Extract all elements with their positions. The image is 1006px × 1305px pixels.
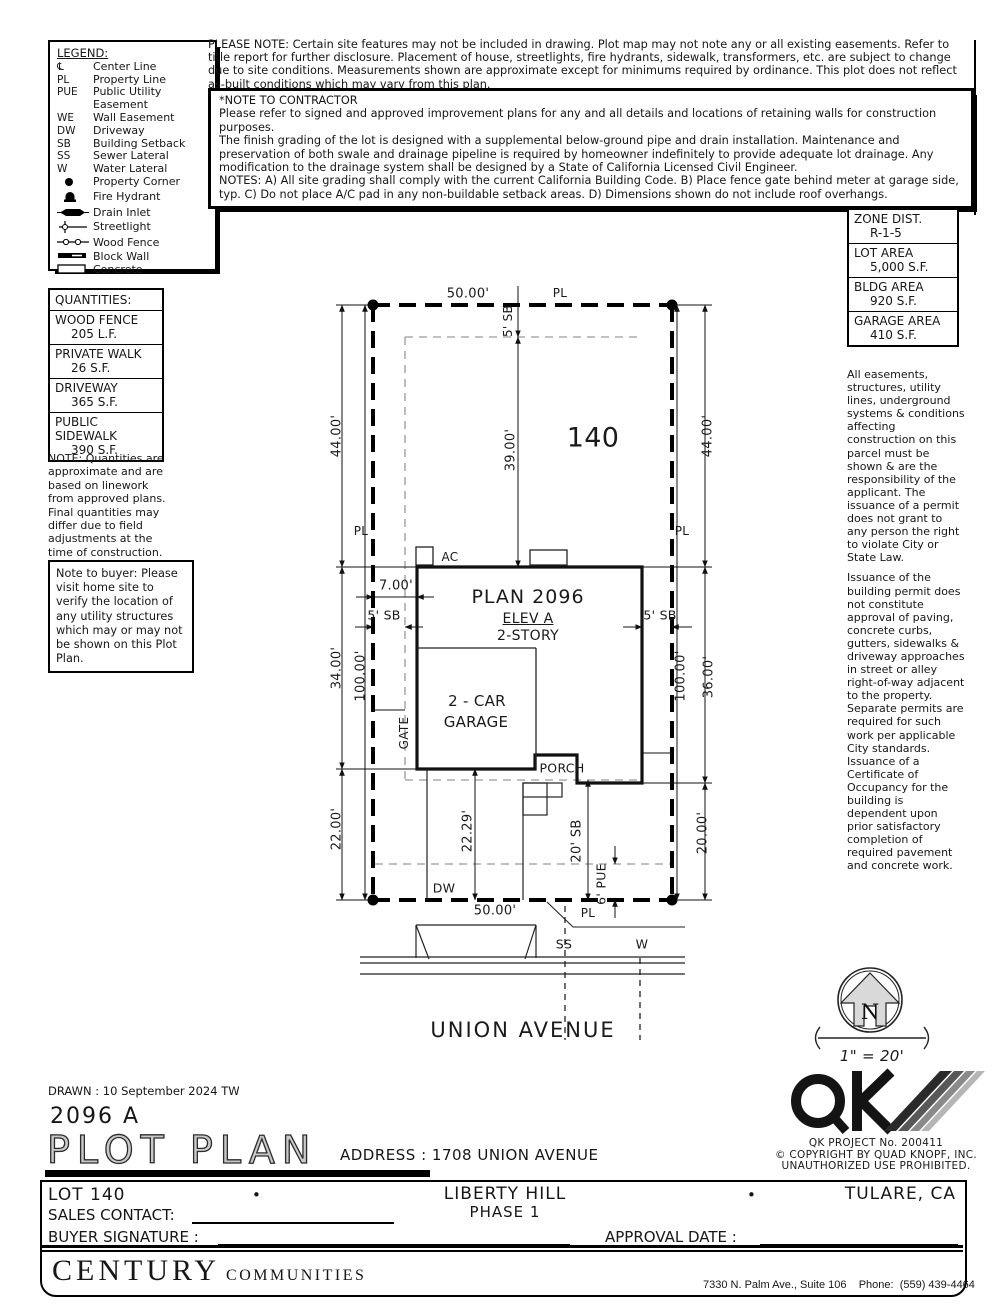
city-disclaimer-text: All easements, structures, utility lines… [847, 368, 965, 873]
separator-line [40, 1250, 963, 1252]
lot-label: LOT 140 [48, 1185, 125, 1205]
contractor-note-p2: The finish grading of the lot is designe… [219, 134, 963, 174]
sales-contact-line [192, 1205, 394, 1224]
plan-name: PLAN 2096 [471, 586, 584, 608]
ac-label: AC [442, 550, 459, 564]
legend-item: Wood Fence [57, 237, 209, 251]
porch-label: PORCH [539, 761, 584, 776]
setback-label-left: 5' SB [367, 608, 400, 623]
setback-label-right: 5' SB [643, 608, 676, 623]
legend-item: ℄Center Line [57, 61, 209, 74]
buyer-signature-line [218, 1227, 570, 1246]
site-address: ADDRESS : 1708 UNION AVENUE [340, 1146, 598, 1164]
scale-bar [816, 1027, 929, 1049]
note-to-buyer-box: Note to buyer: Please visit home site to… [48, 560, 194, 673]
legend-item: PUEPublic Utility Easement [57, 86, 209, 112]
buyer-signature-label: BUYER SIGNATURE : [48, 1228, 199, 1246]
plan-number: 2096 A [50, 1104, 140, 1129]
quantities-title: QUANTITIES: [50, 290, 162, 310]
wall-easement-symbol: WE [57, 112, 93, 125]
note-to-contractor-box: *NOTE TO CONTRACTOR Please refer to sign… [208, 88, 974, 209]
garage-label-1: 2 - CAR [448, 692, 506, 710]
property-line-symbol: PL [57, 74, 93, 87]
north-compass: N [838, 968, 902, 1032]
concrete-icon [57, 264, 93, 278]
disclaimer-p2: Issuance of the building permit does not… [847, 571, 965, 872]
builder-address: 7330 N. Palm Ave., Suite 106 Phone: (559… [703, 1253, 965, 1305]
street-name: UNION AVENUE [430, 1018, 615, 1042]
zone-row: GARAGE AREA410 S.F. [849, 311, 957, 345]
zone-row: ZONE DIST.R-1-5 [849, 210, 957, 243]
pl-label-right: PL [675, 524, 690, 538]
setback-symbol: SB [57, 138, 93, 151]
dim-left-front: 44.00' [330, 415, 345, 458]
plot-plan-sheet: N LEGEND: ℄Center Line PLProperty Line P… [0, 0, 1006, 1305]
dim-right-house: 36.00' [702, 656, 717, 699]
legend-item: Fire Hydrant [57, 191, 209, 207]
block-wall-icon [57, 251, 93, 264]
quantities-note: NOTE: Quantities are approximate and are… [48, 452, 176, 559]
story-label: 2-STORY [497, 628, 559, 644]
contractor-note-title: *NOTE TO CONTRACTOR [219, 94, 963, 107]
dim-left-house: 34.00' [330, 647, 345, 690]
pue-label: 6' PUE [594, 863, 609, 905]
garage-label-2: GARAGE [444, 713, 509, 731]
dim-setback-to-house: 39.00' [504, 429, 519, 472]
drain-inlet-icon [57, 207, 93, 222]
sewer-label: SS [556, 937, 572, 952]
approval-date-line [760, 1227, 958, 1246]
bullet-separator: • [747, 1186, 756, 1204]
legend-item: DWDriveway [57, 125, 209, 138]
driveway-label: DW [433, 881, 456, 896]
qk-logo [796, 1071, 985, 1131]
lot-number: 140 [567, 423, 619, 454]
gate-label: GATE [397, 717, 411, 750]
approval-date-label: APPROVAL DATE : [605, 1228, 737, 1246]
drawn-date: DRAWN : 10 September 2024 TW [48, 1084, 240, 1098]
city-label: TULARE, CA [790, 1184, 956, 1204]
zone-table: ZONE DIST.R-1-5 LOT AREA5,000 S.F. BLDG … [847, 208, 959, 347]
street-lines [360, 957, 685, 974]
legend-title: LEGEND: [57, 47, 209, 60]
dim-right-depth: 100.00' [674, 650, 689, 701]
property-corner-icon [57, 176, 93, 191]
dim-right-front: 44.00' [701, 415, 716, 458]
fire-hydrant-icon [57, 191, 93, 207]
legend-item: Concrete [57, 264, 209, 278]
dim-left-rear: 22.00' [330, 808, 345, 851]
disclaimer-p1: All easements, structures, utility lines… [847, 368, 965, 564]
phase-label: PHASE 1 [400, 1203, 610, 1221]
dim-left-depth: 100.00' [354, 650, 369, 701]
title-underline-bar [45, 1170, 430, 1177]
water-label: W [636, 937, 649, 952]
please-note-text: PLEASE NOTE: Certain site features may n… [208, 38, 958, 91]
separator-line [40, 1245, 963, 1248]
streetlight-icon [57, 221, 93, 237]
pl-leader-line [547, 902, 685, 927]
zone-row: BLDG AREA920 S.F. [849, 277, 957, 311]
driveway-symbol: DW [57, 125, 93, 138]
centerline-symbol: ℄ [57, 61, 93, 74]
legend-item: Block Wall [57, 251, 209, 264]
pue-symbol: PUE [57, 86, 93, 99]
sales-contact-label: SALES CONTACT: [48, 1206, 175, 1224]
sewer-symbol: SS [57, 150, 93, 163]
quantity-row: DRIVEWAY365 S.F. [50, 378, 162, 412]
dim-side-7: 7.00' [379, 579, 413, 594]
north-label: N [861, 1000, 879, 1024]
qk-project-number: QK PROJECT No. 200411 [809, 1137, 943, 1149]
ac-pad [416, 547, 433, 565]
dim-driveway: 22.29' [461, 810, 476, 853]
bullet-separator: • [252, 1186, 261, 1204]
contractor-note-p3: NOTES: A) All site grading shall comply … [219, 174, 963, 201]
legend-item: Drain Inlet [57, 207, 209, 222]
dim-front-width: 50.00' [447, 287, 490, 302]
sheet-title: PLOT PLAN [47, 1128, 317, 1172]
contractor-note-p1: Please refer to signed and approved impr… [219, 107, 963, 134]
dim-right-rear: 20.00' [696, 812, 711, 855]
pl-label-bottom: PL [581, 906, 596, 920]
community-name: LIBERTY HILL [400, 1184, 610, 1204]
builder-logo: CENTURYCOMMUNITIES [52, 1254, 366, 1288]
quantities-table: QUANTITIES: WOOD FENCE205 L.F. PRIVATE W… [48, 288, 164, 462]
driveway-apron [416, 925, 536, 959]
scale-text: 1" = 20' [840, 1047, 904, 1065]
zone-row: LOT AREA5,000 S.F. [849, 243, 957, 277]
porch-steps [523, 783, 562, 815]
legend-item: Streetlight [57, 221, 209, 237]
legend-box: LEGEND: ℄Center Line PLProperty Line PUE… [48, 40, 217, 271]
dim-rear-width: 50.00' [474, 904, 517, 919]
legend-item: Property Corner [57, 176, 209, 191]
legend-item: WEWall Easement [57, 112, 209, 125]
pl-label-left: PL [354, 524, 369, 538]
rear-setback-label: 20' SB [570, 819, 585, 862]
qk-unauthorized: UNAUTHORIZED USE PROHIBITED. [781, 1160, 970, 1172]
elevation-label: ELEV A [503, 611, 554, 627]
entry-stoop [530, 550, 567, 565]
quantity-row: PRIVATE WALK26 S.F. [50, 344, 162, 378]
water-symbol: W [57, 163, 93, 176]
quantity-row: WOOD FENCE205 L.F. [50, 310, 162, 344]
wood-fence-icon [57, 237, 93, 251]
pl-label-top: PL [553, 286, 568, 300]
setback-label-top: 5' SB [501, 305, 515, 337]
